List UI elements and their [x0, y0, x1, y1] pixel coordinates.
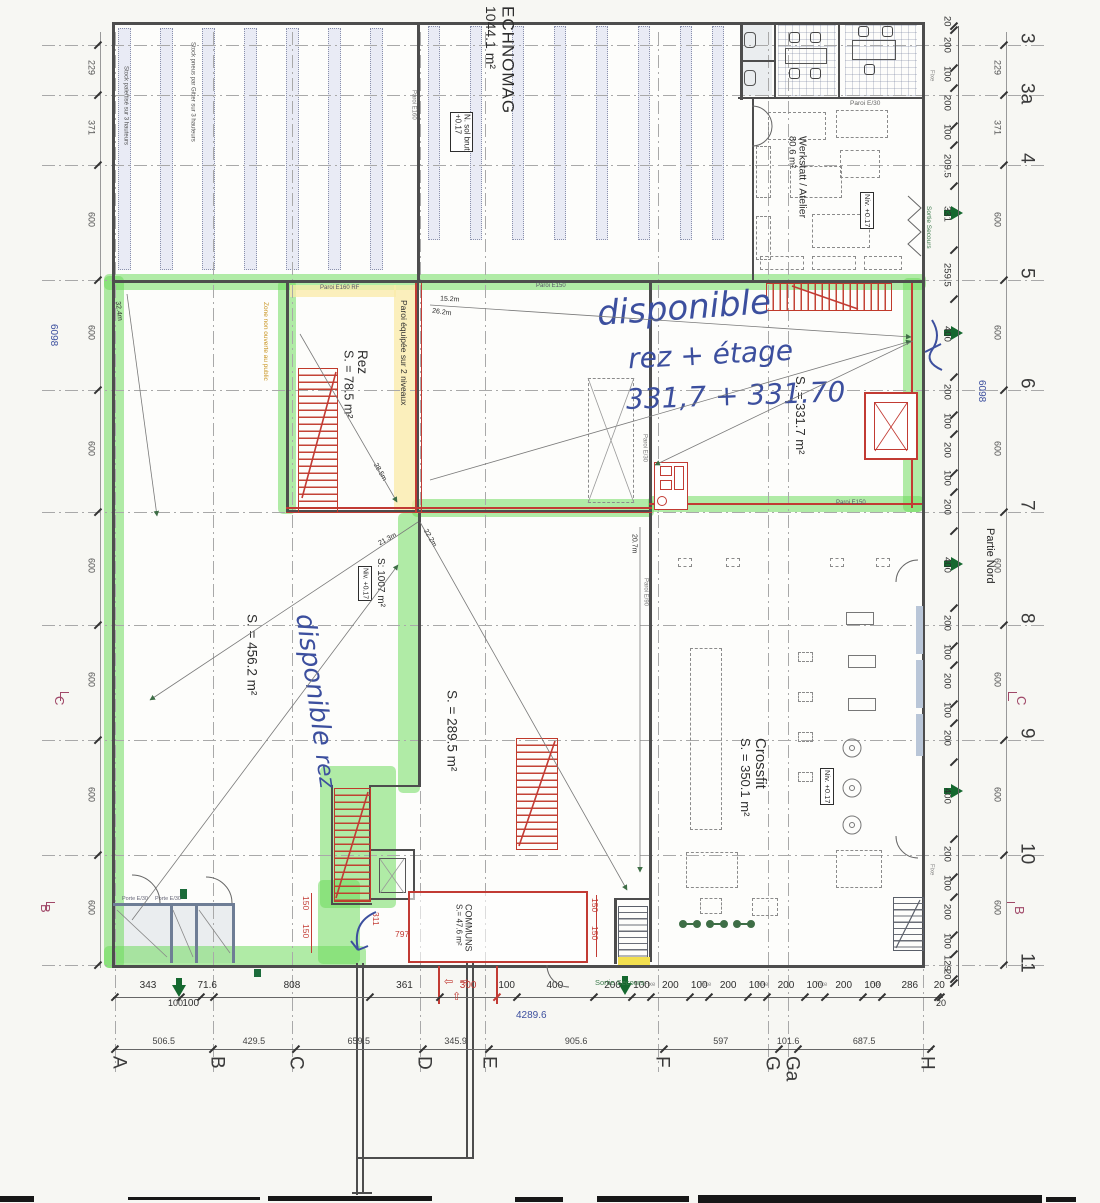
gray-stair-line [896, 900, 920, 948]
survey-lines [127, 294, 913, 920]
stair-run-lines [302, 286, 907, 898]
dumbbell-icons [680, 921, 754, 927]
door-arcs [132, 106, 921, 987]
plan-lines-layer [0, 0, 1100, 1203]
void-cross [380, 378, 634, 893]
blue-ink-strokes [351, 320, 942, 950]
plyo-circles [843, 739, 861, 834]
floorplan-scan: FixeFixeFixeFixeFixe34310071.68083613001… [0, 0, 1100, 1203]
